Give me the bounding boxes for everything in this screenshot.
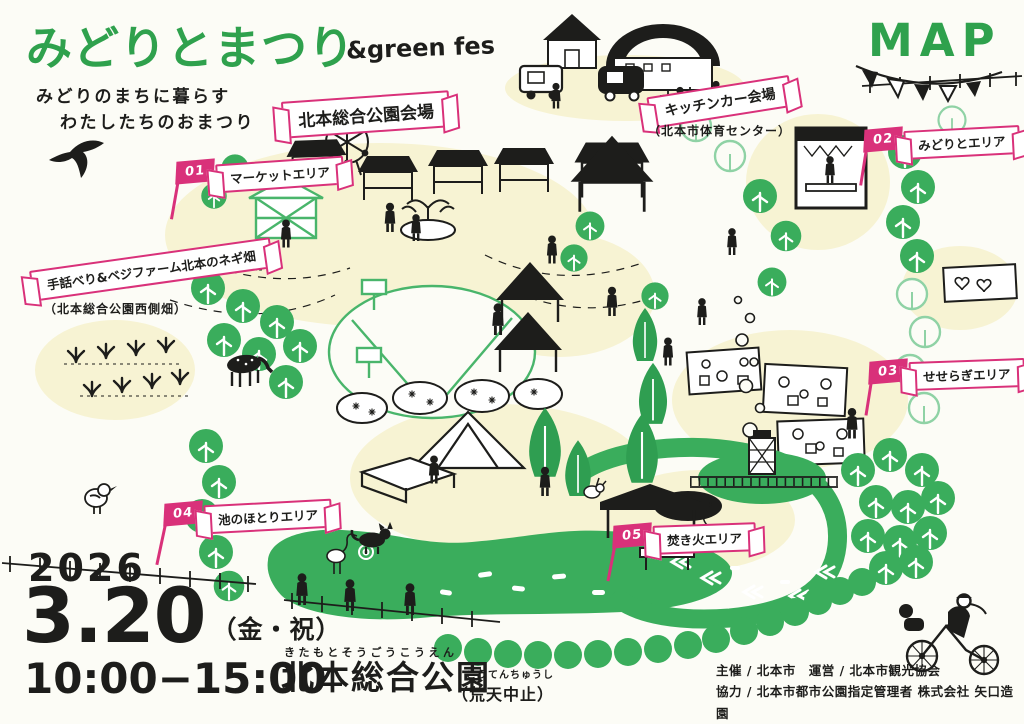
cancel-note-block: こうてんちゅうし （荒天中止） [452,666,554,705]
credits-line1: 主催 / 北本市 運営 / 北本市観光協会 [716,660,1024,681]
swallow-icon [49,140,104,178]
cancel-note: （荒天中止） [452,681,554,705]
bunting-icon [856,66,1002,101]
credits-line2: 協力 / 北本市都市公園指定管理者 株式会社 矢口造園 [716,681,1024,724]
area-flag-02: 02 みどりとエリア [864,128,1020,157]
area-flag-04: 04 池のほとりエリア [164,502,332,531]
event-date-row: 3.20 （金・祝） [22,578,342,654]
area-flag-03: 03 せせらぎエリア [869,360,1024,389]
poster-title: みどりとまつり [26,12,355,78]
kitchen-car-note: （北本市体育センター） [648,122,791,139]
area-label: みどりとエリア [903,125,1020,160]
area-flag-05: 05 焚き火エリア [613,524,756,553]
cancel-furigana: こうてんちゅうし [466,666,554,681]
map-label: MAP [868,14,1002,67]
event-day: 3.20 [22,578,206,654]
poster-subtitle-line2: わたしたちのおまつり [60,108,255,133]
area-flag-01: 01 マーケットエリア [176,160,344,189]
area-label: 池のほとりエリア [203,499,332,535]
poster-title-suffix: &green fes [346,31,496,64]
festival-map-poster: みどりとまつり &green fes みどりのまちに暮らす わたしたちのおまつり… [0,0,1024,724]
small-bird-icon [85,484,117,514]
heart-sign [943,264,1017,302]
negi-field-note: （北本総合公園西側畑） [44,300,187,317]
poster-subtitle-line1: みどりのまちに暮らす [36,82,231,107]
area-label: 焚き火エリア [653,522,757,555]
area-label: せせらぎエリア [909,358,1024,391]
area-label: マーケットエリア [215,156,345,194]
credits-block: 主催 / 北本市 運営 / 北本市観光協会 協力 / 北本市都市公園指定管理者 … [716,660,1024,724]
